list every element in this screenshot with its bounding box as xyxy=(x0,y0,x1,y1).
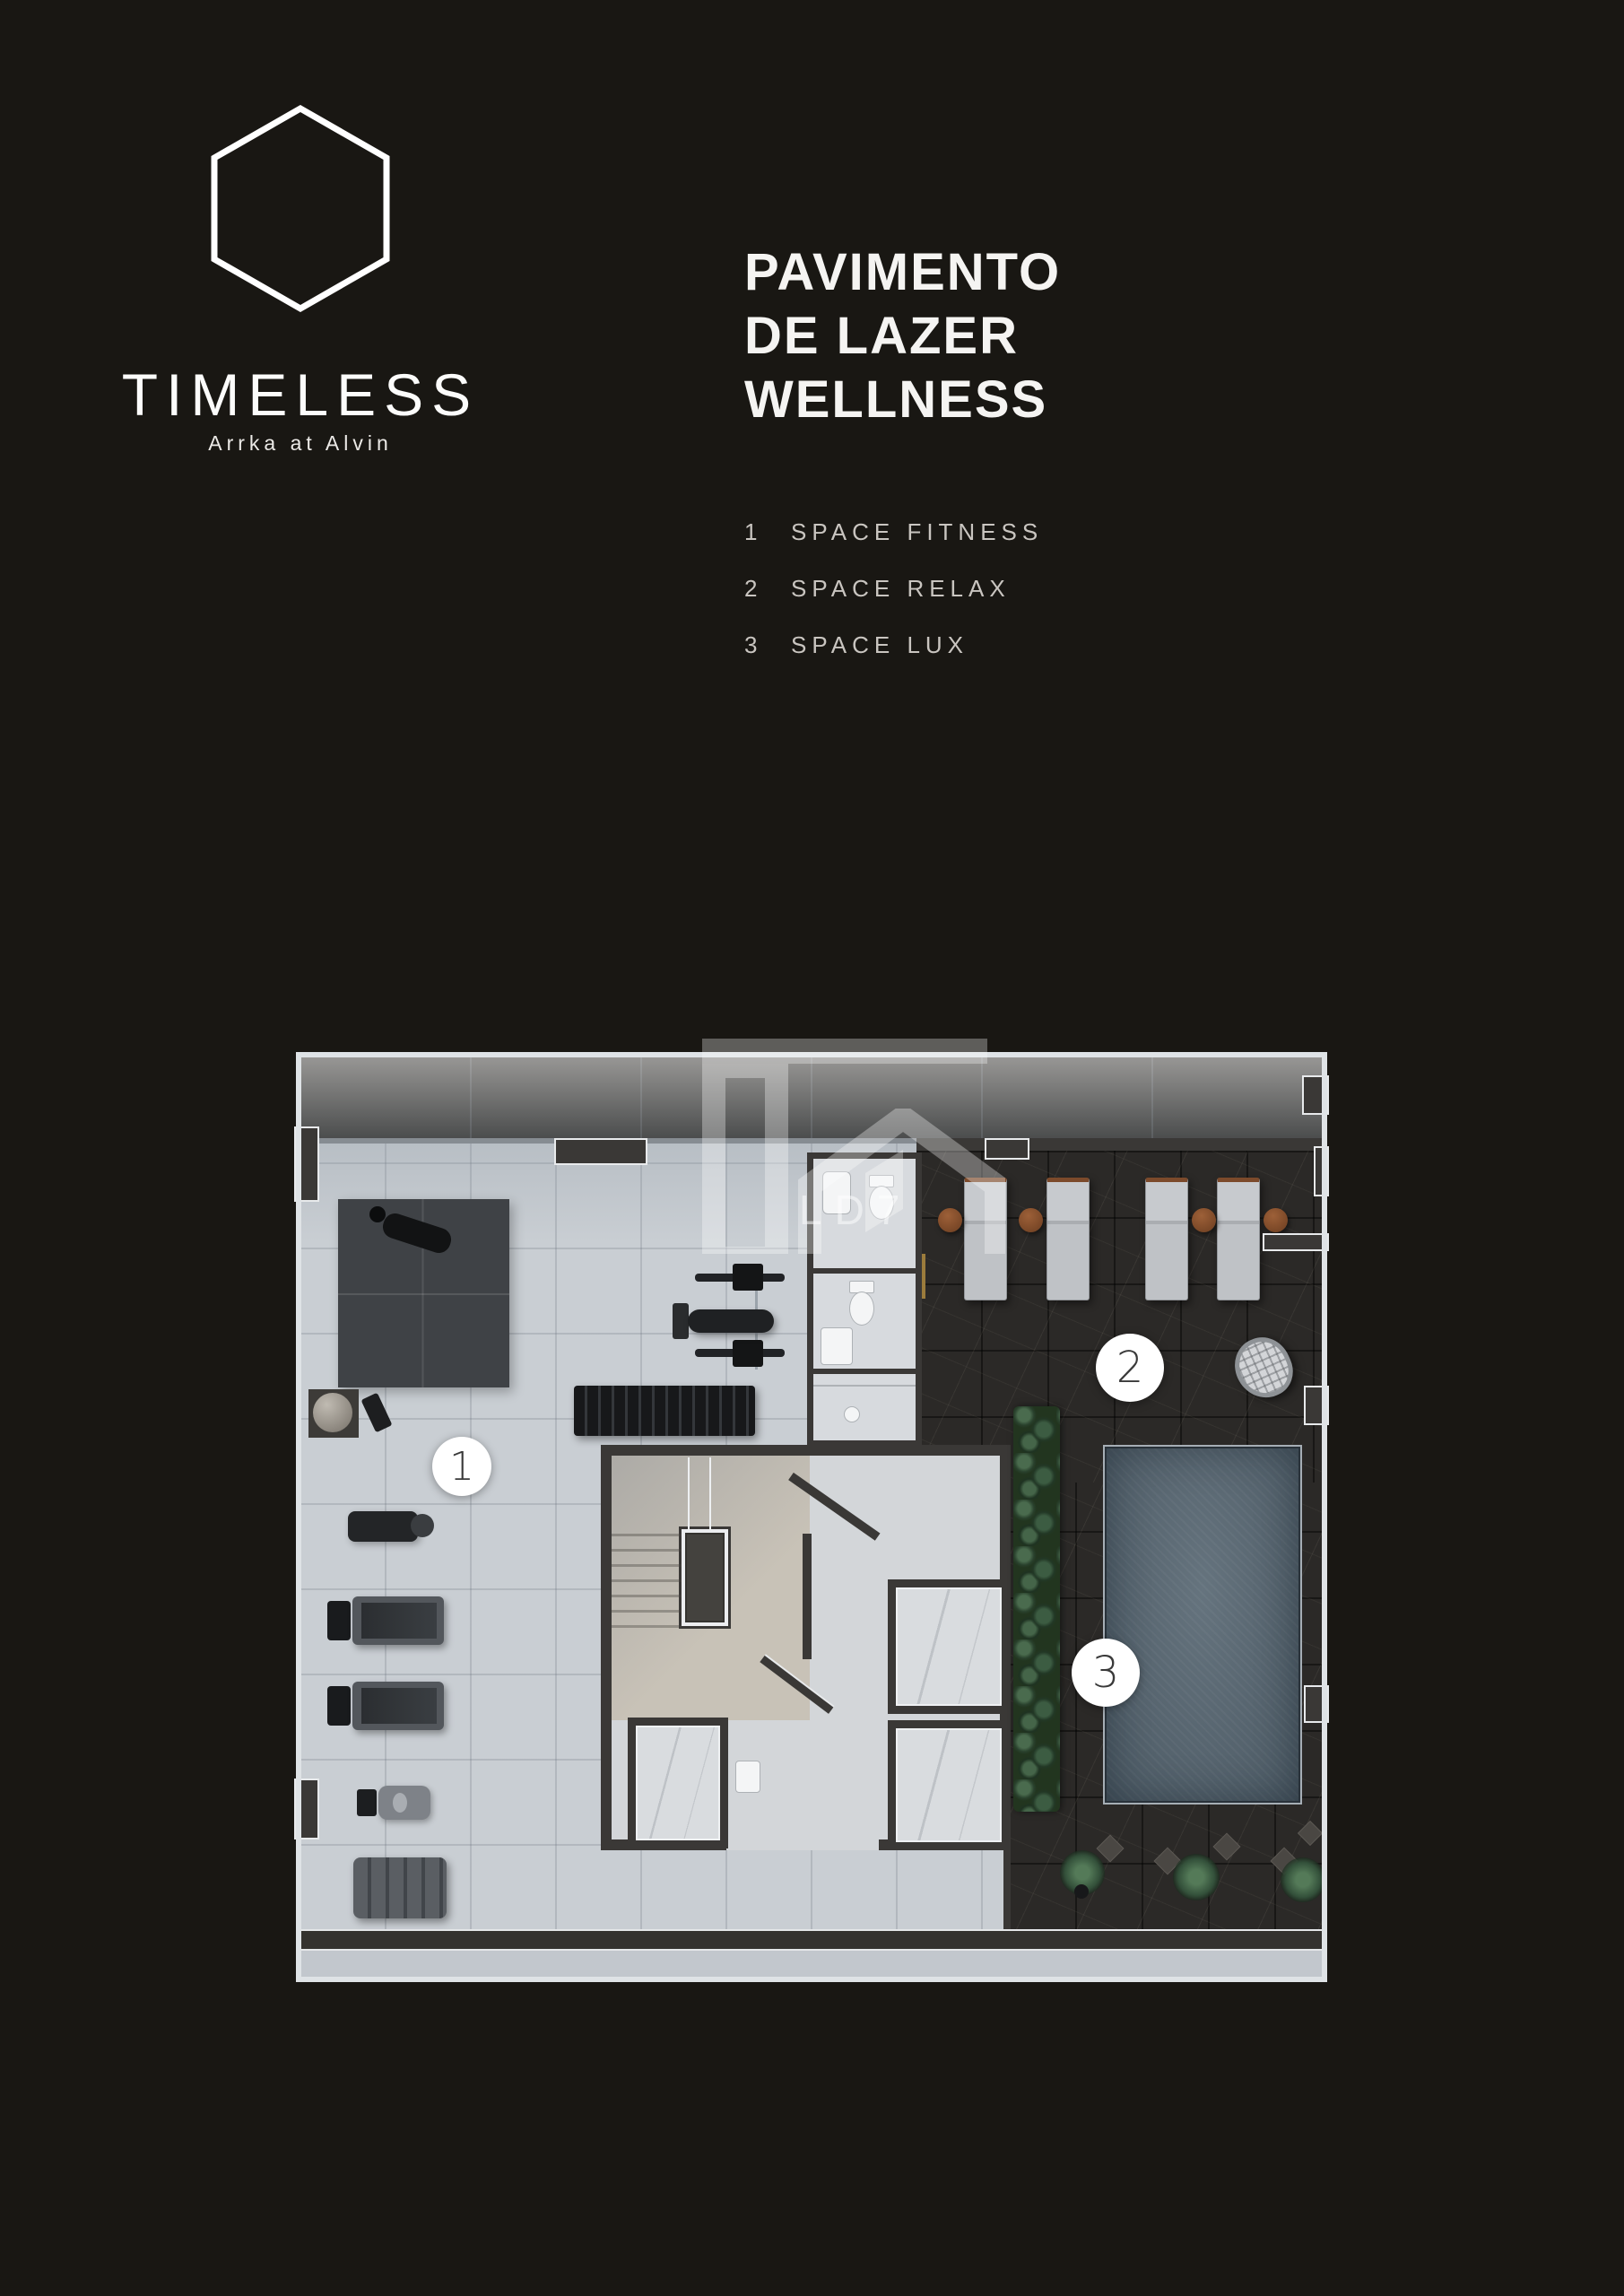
shower-drain xyxy=(844,1406,860,1422)
elevator xyxy=(888,1720,1010,1850)
column-pillar xyxy=(1316,1148,1327,1195)
south-wall xyxy=(301,1929,1322,1951)
core-west-wall xyxy=(601,1445,612,1850)
climber-machine xyxy=(353,1857,447,1918)
vanity-sink xyxy=(821,1327,853,1365)
stair-step xyxy=(612,1549,682,1552)
stair-step xyxy=(612,1534,682,1536)
treadmill xyxy=(327,1596,444,1645)
marker-number: 3 xyxy=(1092,1648,1120,1698)
treadmill-console xyxy=(327,1686,351,1726)
column-pillar xyxy=(296,1780,317,1838)
swimming-pool xyxy=(1105,1447,1300,1803)
elliptical-pedal xyxy=(393,1793,407,1813)
page-title-line-1: PAVIMENTO xyxy=(744,240,1061,304)
sun-lounger xyxy=(1046,1178,1090,1300)
stair-rail xyxy=(709,1457,711,1529)
sun-lounger xyxy=(1217,1178,1260,1300)
legend-label: SPACE LUX xyxy=(791,631,968,658)
wall-stub xyxy=(1264,1235,1327,1249)
side-table xyxy=(1192,1208,1216,1232)
elevator xyxy=(628,1718,728,1848)
brand-tagline: Arrka at Alvin xyxy=(76,431,525,456)
hedge-planter xyxy=(1013,1406,1060,1812)
column-pillar xyxy=(1306,1687,1327,1721)
shower-glass xyxy=(813,1385,916,1387)
potted-plant xyxy=(1173,1854,1220,1900)
legend-number: 1 xyxy=(744,518,791,546)
sun-lounger xyxy=(964,1178,1007,1300)
dumbbell-rack xyxy=(574,1386,755,1436)
marker-number: 1 xyxy=(449,1444,474,1490)
elevator xyxy=(888,1579,1010,1714)
legend-item-fitness: 1SPACE FITNESS xyxy=(744,518,1043,546)
treadmill xyxy=(327,1682,444,1730)
stair-step xyxy=(612,1595,682,1597)
plant-pot xyxy=(1074,1884,1089,1899)
relax-area-top-wall xyxy=(916,1138,1322,1151)
bathroom-divider-wall xyxy=(813,1268,916,1274)
floor-plan: 1 2 3 xyxy=(296,1052,1327,1982)
spin-bike-wheel xyxy=(411,1514,434,1537)
balcony-strip xyxy=(301,1057,1322,1138)
area-marker-lux: 3 xyxy=(1072,1639,1140,1707)
area-marker-relax: 2 xyxy=(1096,1334,1164,1402)
stair-step xyxy=(612,1579,682,1582)
legend-number: 2 xyxy=(744,575,791,603)
potted-plant xyxy=(1281,1857,1325,1902)
legend-item-relax: 2SPACE RELAX xyxy=(744,575,1011,603)
treadmill-belt xyxy=(361,1688,437,1724)
sink xyxy=(822,1171,851,1214)
hexagon-logo-icon xyxy=(211,105,390,312)
legend-number: 3 xyxy=(744,631,791,659)
treadmill-console xyxy=(327,1601,351,1640)
elliptical-trainer xyxy=(357,1782,432,1823)
column-pillar xyxy=(296,1128,317,1200)
page-title: PAVIMENTO DE LAZER WELLNESS xyxy=(744,240,1061,431)
side-table xyxy=(1264,1208,1288,1232)
sun-lounger xyxy=(1145,1178,1188,1300)
south-walkway xyxy=(301,1951,1322,1977)
stairwell-east-wall xyxy=(803,1534,812,1659)
core-south-opening xyxy=(726,1839,879,1850)
stair-rail xyxy=(688,1457,690,1529)
drinking-fountain xyxy=(735,1761,760,1793)
weight-plates-top xyxy=(733,1264,763,1291)
page-title-line-3: WELLNESS xyxy=(744,368,1061,431)
page-title-line-2: DE LAZER xyxy=(744,304,1061,368)
stability-ball xyxy=(313,1393,352,1432)
workout-bench xyxy=(688,1309,774,1333)
weight-plates-bottom xyxy=(733,1340,763,1367)
stair-step xyxy=(612,1564,682,1567)
stair-step xyxy=(612,1625,682,1628)
side-table xyxy=(938,1208,962,1232)
outdoor-shower-pole xyxy=(922,1254,925,1299)
column-pillar xyxy=(556,1140,646,1163)
column-pillar xyxy=(1304,1077,1327,1113)
legend-item-lux: 3SPACE LUX xyxy=(744,631,968,659)
bench-rack-post xyxy=(673,1303,689,1339)
side-table xyxy=(1019,1208,1043,1232)
column-pillar xyxy=(1306,1387,1327,1423)
brochure-page: TIMELESS Arrka at Alvin PAVIMENTO DE LAZ… xyxy=(0,0,1624,2296)
core-north-wall xyxy=(601,1445,1011,1456)
area-marker-fitness: 1 xyxy=(432,1437,491,1496)
legend-label: SPACE FITNESS xyxy=(791,518,1043,545)
toilet xyxy=(869,1186,894,1220)
medicine-ball-small xyxy=(369,1206,386,1222)
column-pillar xyxy=(986,1140,1028,1158)
elliptical-console xyxy=(357,1789,377,1816)
marker-number: 2 xyxy=(1116,1343,1144,1393)
brand-name: TIMELESS xyxy=(76,361,525,429)
legend: 1SPACE FITNESS 2SPACE RELAX 3SPACE LUX xyxy=(744,518,1193,698)
bathroom-divider-wall xyxy=(813,1369,916,1374)
stair-step xyxy=(612,1610,682,1613)
stair-void xyxy=(682,1529,728,1626)
toilet xyxy=(849,1291,874,1326)
legend-label: SPACE RELAX xyxy=(791,575,1011,602)
spin-bike xyxy=(348,1511,418,1542)
bathroom-block xyxy=(807,1152,922,1447)
treadmill-belt xyxy=(361,1603,437,1639)
